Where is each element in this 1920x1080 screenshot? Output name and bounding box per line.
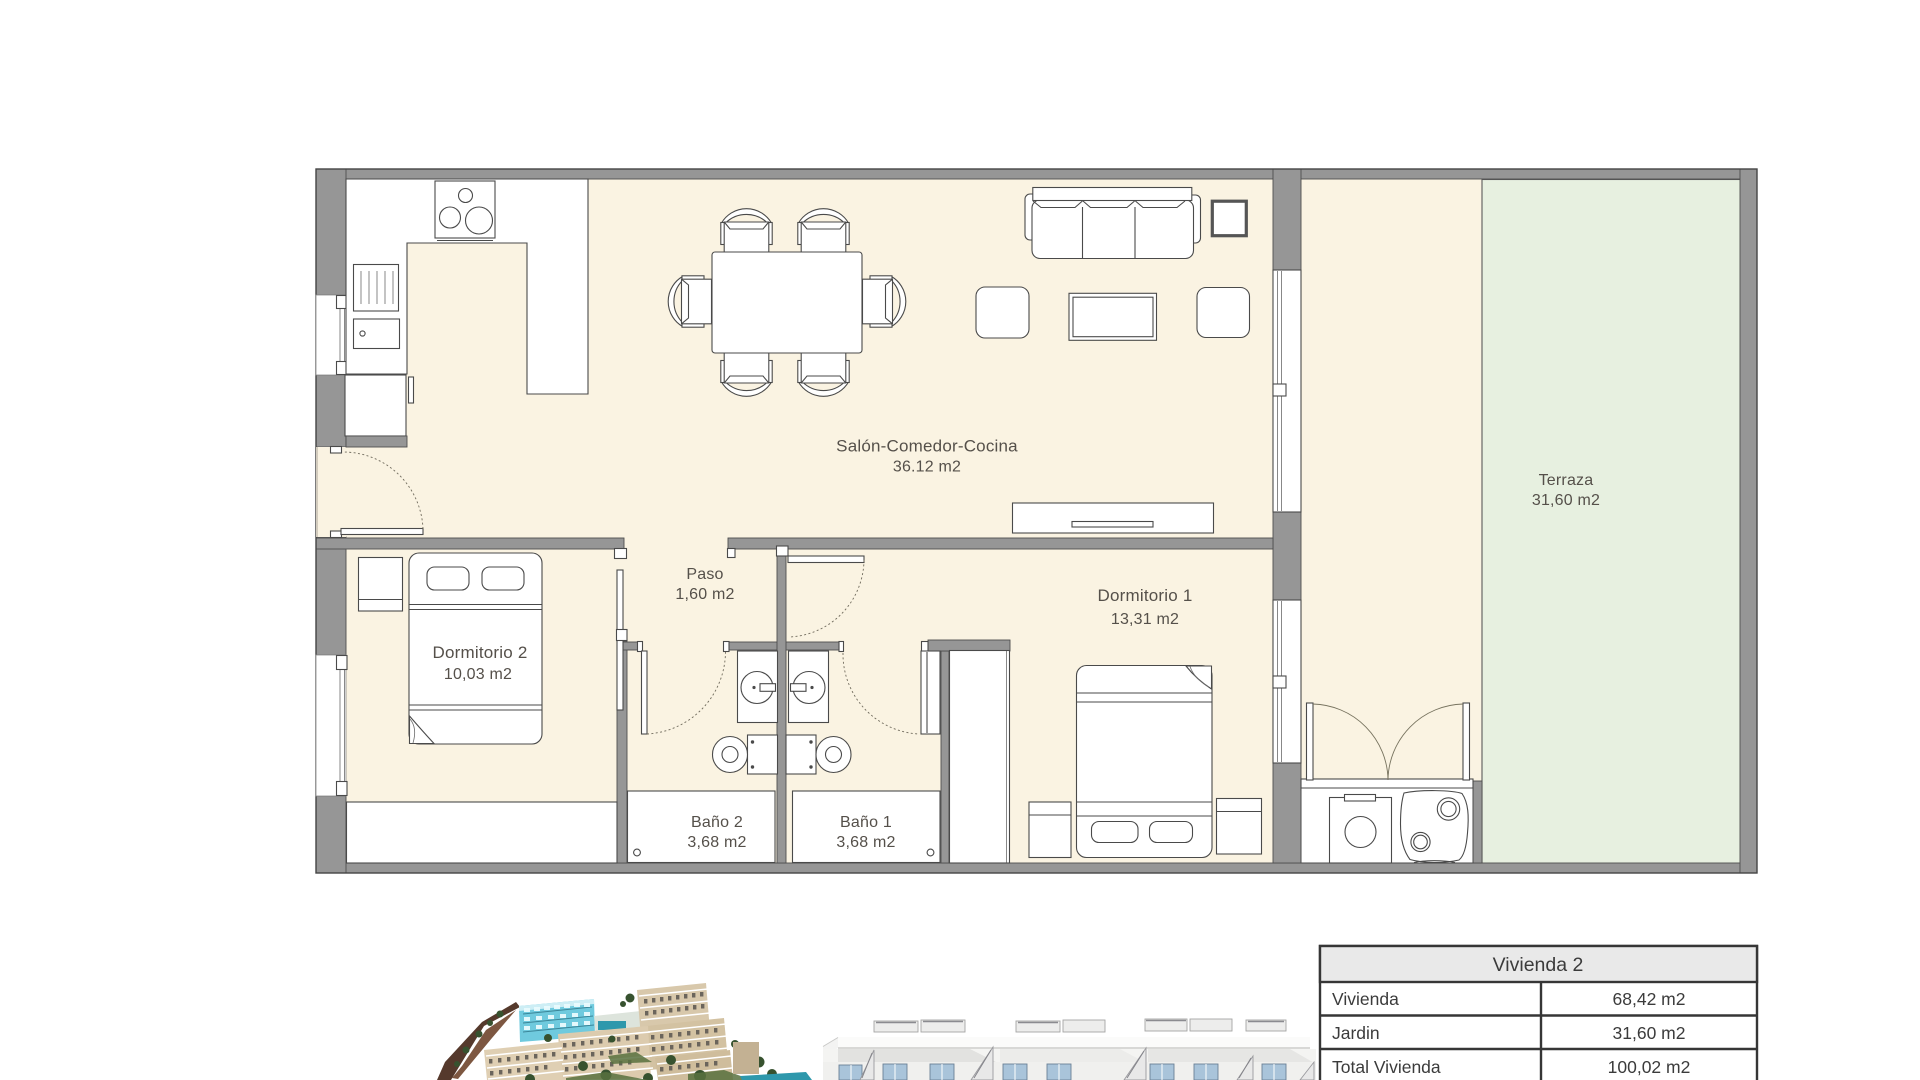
svg-text:1,60 m2: 1,60 m2: [675, 586, 734, 603]
svg-text:Terraza: Terraza: [1539, 472, 1594, 489]
svg-text:Total Vivienda: Total Vivienda: [1332, 1057, 1441, 1077]
svg-text:Vivienda 2: Vivienda 2: [1493, 954, 1584, 976]
svg-text:100,02 m2: 100,02 m2: [1608, 1057, 1691, 1077]
svg-text:Jardin: Jardin: [1332, 1023, 1380, 1043]
svg-text:3,68 m2: 3,68 m2: [836, 834, 895, 851]
svg-text:Dormitorio 1: Dormitorio 1: [1098, 586, 1193, 605]
svg-text:13,31 m2: 13,31 m2: [1111, 611, 1179, 628]
svg-text:31,60 m2: 31,60 m2: [1532, 492, 1600, 509]
svg-text:31,60 m2: 31,60 m2: [1613, 1023, 1686, 1043]
svg-text:Baño 2: Baño 2: [691, 814, 743, 831]
svg-text:3,68 m2: 3,68 m2: [687, 834, 746, 851]
svg-text:Vivienda: Vivienda: [1332, 989, 1399, 1009]
svg-text:36.12 m2: 36.12 m2: [893, 459, 961, 476]
svg-text:Salón-Comedor-Cocina: Salón-Comedor-Cocina: [836, 437, 1018, 456]
svg-text:10,03 m2: 10,03 m2: [444, 666, 512, 683]
svg-text:Baño 1: Baño 1: [840, 814, 892, 831]
svg-text:Paso: Paso: [686, 566, 723, 583]
svg-text:Dormitorio 2: Dormitorio 2: [433, 643, 528, 662]
svg-text:68,42 m2: 68,42 m2: [1613, 989, 1686, 1009]
